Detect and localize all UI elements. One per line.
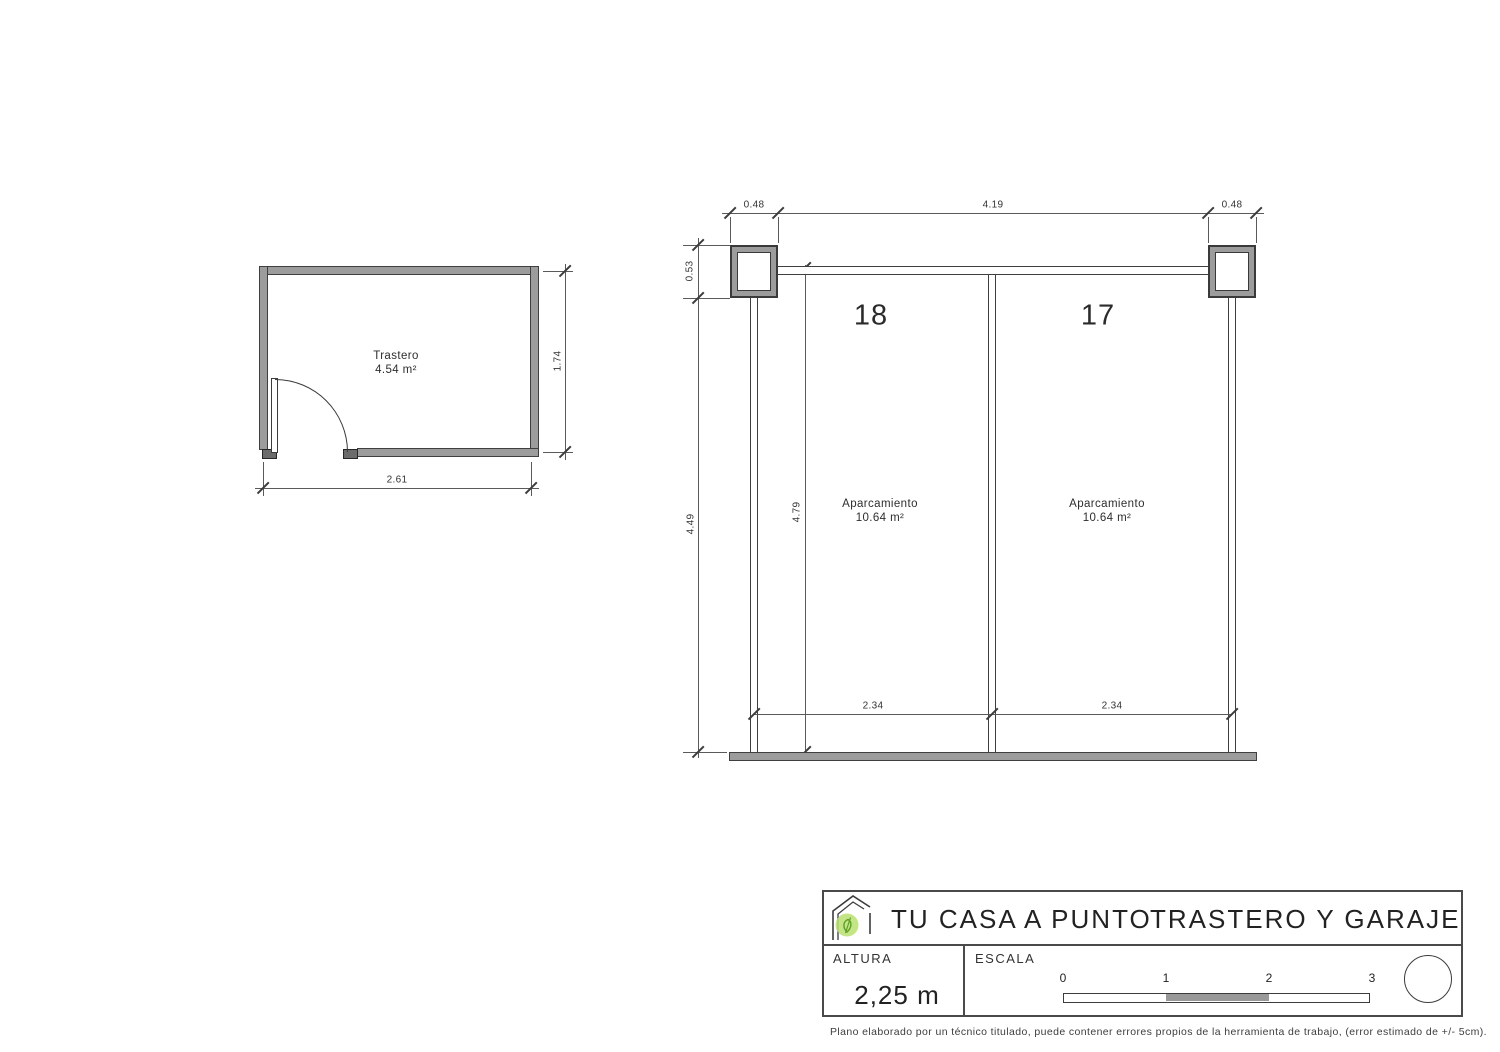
dim-value-top-left: 0.48 [744,200,765,211]
leaf-icon [836,914,859,937]
space-number: 18 [854,300,888,333]
column-left-core [737,252,771,291]
scale-bar-middle-segment [1166,994,1269,1001]
dim-line [255,488,539,489]
scale-bar-track [1063,993,1370,1003]
title-block-row-divider [822,944,1463,946]
dim-extension [778,217,779,243]
column-left [730,245,778,298]
dim-line [698,238,699,758]
garage-wall-divider [988,275,996,753]
altura-value: 2,25 m [854,980,940,1011]
dim-value-top-center: 4.19 [983,200,1004,211]
dim-line [805,265,806,752]
title-block-col-divider [963,944,965,1017]
column-right [1208,245,1256,298]
garage-wall-right [1228,298,1236,753]
scale-tick-3: 3 [1369,971,1376,985]
room-area: 4.54 m² [375,364,417,376]
dim-extension [543,271,573,272]
scale-tick-2: 2 [1266,971,1273,985]
dim-extension [543,452,573,453]
dim-value-inner-height: 4.79 [792,502,803,523]
dim-value-left-upper: 0.53 [685,261,696,282]
dim-extension [263,462,264,496]
column-right-core [1215,252,1249,291]
disclaimer-text: Plano elaborado por un técnico titulado,… [830,1026,1487,1038]
garage-bottom-slab [729,752,1257,761]
space-label: Aparcamiento [842,498,918,510]
sheet-title: TRASTERO Y GARAJE [1150,904,1455,935]
trastero-wall-top [259,266,539,275]
trastero-wall-left [259,266,268,450]
altura-label: ALTURA [833,951,892,966]
floor-plan-sheet: Trastero 4.54 m² 2.61 1.74 0.48 4.19 0.4… [0,0,1500,1052]
company-logo-house-icon [826,892,876,942]
dim-extension [1256,217,1257,243]
dim-extension [683,245,730,246]
dim-extension [683,752,727,753]
dim-value-width: 2.61 [387,475,408,486]
dim-extension [683,298,730,299]
trastero-wall-right [530,266,539,457]
dim-line [754,714,1232,715]
space-number: 17 [1081,300,1115,333]
garage-wall-top [778,266,1208,275]
door-swing-arc [275,379,348,452]
room-name: Trastero [373,350,419,362]
north-circle [1404,955,1452,1003]
dim-line [722,213,1264,214]
space-area: 10.64 m² [1083,512,1132,524]
dim-extension [531,462,532,496]
dim-line [565,264,566,460]
dim-value-height: 1.74 [553,351,564,372]
escala-label: ESCALA [975,951,1035,966]
dim-value-left-full: 4.49 [686,514,697,535]
dim-value-space17-width: 2.34 [1102,701,1123,712]
dim-value-top-right: 0.48 [1222,200,1243,211]
dim-extension [730,217,731,243]
space-label: Aparcamiento [1069,498,1145,510]
garage-wall-left [750,298,758,753]
space-area: 10.64 m² [856,512,905,524]
company-name: TU CASA A PUNTO [891,904,1152,935]
scale-tick-0: 0 [1060,971,1067,985]
scale-tick-1: 1 [1163,971,1170,985]
dim-extension [1208,217,1209,243]
trastero-wall-bottom [357,448,539,457]
dim-value-space18-width: 2.34 [863,701,884,712]
